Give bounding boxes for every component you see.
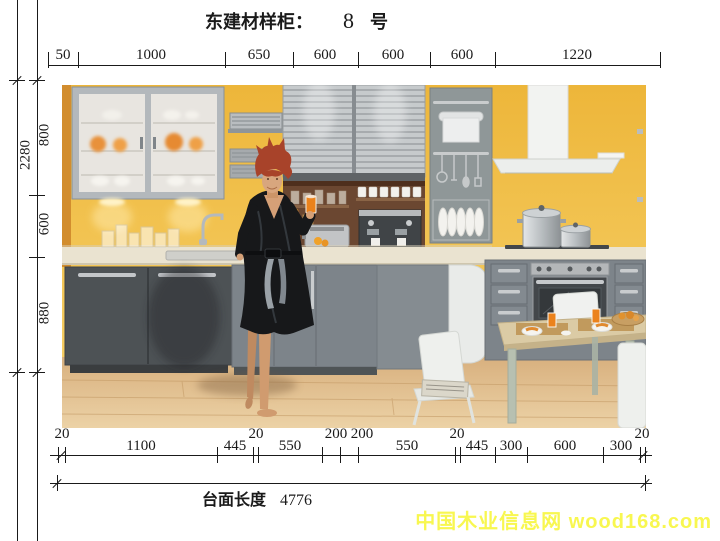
kitchen-photo: [62, 85, 646, 428]
dimension-line: [50, 455, 652, 456]
tick-mark: [225, 52, 226, 68]
dim-top-3: 600: [314, 48, 337, 63]
tambour-cabinet: [283, 85, 425, 181]
dimension-line: [48, 65, 660, 66]
dim-top-1: 1000: [136, 48, 166, 63]
newspaper: [422, 380, 469, 398]
dim-bottom-4: 445: [466, 439, 489, 454]
tick-mark: [48, 52, 49, 68]
dimension-line: [50, 483, 652, 484]
dim-bottom-2: 550: [279, 439, 302, 454]
dim-bottom-small-1: 20: [249, 427, 264, 442]
tick-mark: [455, 447, 456, 463]
overall-length-label: 台面长度: [202, 486, 266, 510]
tick-mark: [358, 52, 359, 68]
title-number: 8: [343, 8, 354, 34]
dim-left-total: 2280: [19, 140, 34, 170]
tick-mark: [258, 447, 259, 463]
dim-bottom-0: 1100: [126, 439, 155, 454]
drawer-stack-left: [491, 264, 527, 325]
tick-mark: [645, 447, 646, 463]
tick-mark: [660, 52, 661, 68]
title-prefix: 东建材样柜：: [205, 8, 313, 34]
utensil-panel: [430, 88, 492, 243]
tick-mark: [527, 447, 528, 463]
plate-rack: [439, 208, 484, 236]
dim-bottom-small-0: 20: [55, 427, 70, 442]
dim-bottom-small-3: 200: [351, 427, 374, 442]
dim-bottom-small-2: 200: [325, 427, 348, 442]
sheet-title: 东建材样柜： 8 号: [205, 8, 388, 34]
dim-left-2: 880: [38, 302, 53, 325]
watermark: 中国木业信息网 wood168.com: [415, 505, 712, 534]
chair-right: [618, 343, 646, 428]
dim-bottom-small-4: 20: [450, 427, 465, 442]
overall-length-value: 4776: [280, 492, 312, 510]
floor-shadow: [197, 374, 297, 396]
dim-bottom-6: 600: [554, 439, 577, 454]
tick-mark: [29, 257, 45, 258]
tick-mark: [65, 447, 66, 463]
base-cabinet-left: [65, 267, 232, 373]
dim-left-0: 800: [38, 124, 53, 147]
tick-mark: [340, 447, 341, 463]
tick-mark: [217, 447, 218, 463]
dim-top-5: 600: [451, 48, 474, 63]
dim-top-2: 650: [248, 48, 271, 63]
tick-mark: [430, 52, 431, 68]
dim-bottom-5: 300: [500, 439, 523, 454]
tick-mark: [460, 447, 461, 463]
tick-mark: [253, 447, 254, 463]
dim-top-6: 1220: [562, 48, 592, 63]
tick-mark: [293, 52, 294, 68]
dim-top-0: 50: [56, 48, 71, 63]
glass-wall-cabinet: [72, 87, 224, 206]
dimension-line: [17, 0, 18, 541]
dim-left-1: 600: [38, 213, 53, 236]
drawing-sheet: 东建材样柜： 8 号 50 1000 650 600 600 600 1220: [0, 0, 720, 541]
tick-mark: [495, 52, 496, 68]
dimension-line: [37, 0, 38, 541]
dim-bottom-1: 445: [224, 439, 247, 454]
tick-mark: [495, 447, 496, 463]
tick-mark: [29, 195, 45, 196]
title-suffix: 号: [370, 8, 388, 34]
orange-juice-glass: [306, 196, 316, 213]
dim-top-4: 600: [382, 48, 405, 63]
dim-bottom-3: 550: [396, 439, 419, 454]
tick-mark: [603, 447, 604, 463]
tick-mark: [322, 447, 323, 463]
dim-bottom-7: 300: [610, 439, 633, 454]
dim-bottom-small-5: 20: [635, 427, 650, 442]
tick-mark: [78, 52, 79, 68]
tick-mark: [358, 447, 359, 463]
